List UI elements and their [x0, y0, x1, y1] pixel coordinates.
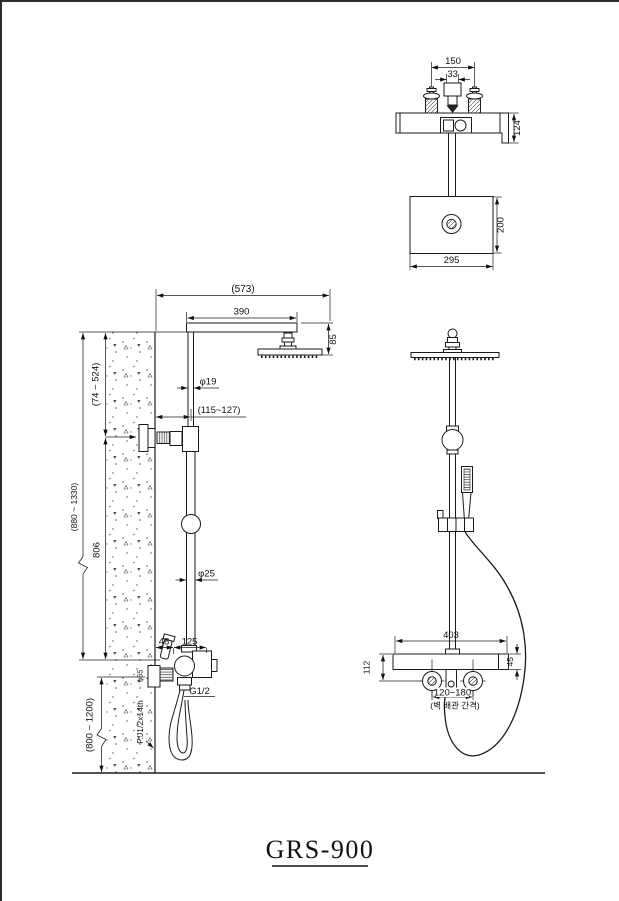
dim-arm-length: 390	[234, 307, 250, 318]
front-view: 403 112 45 120~180 (벽 배관 간격)	[362, 329, 526, 756]
ball-joint-front	[442, 430, 463, 451]
shower-arm	[187, 323, 298, 332]
spout-arrow	[447, 106, 459, 114]
wall-hatch	[107, 332, 156, 773]
drawing-sheet: 150 33 124 200 295	[0, 0, 619, 901]
hose-front	[444, 532, 525, 756]
dim-supply-spacing: 120~180	[434, 688, 471, 699]
dim-overall-height-range: (880 ~ 1330)	[69, 483, 79, 532]
dim-valve-center-height: 112	[362, 660, 372, 674]
hand-shower-front	[462, 467, 473, 522]
riser-upper	[188, 332, 194, 437]
label-outlet-thread: G1/2	[189, 686, 210, 697]
dim-wall-offset-a: 48	[159, 637, 170, 648]
dim-install-height-range: (800 ~ 1200)	[85, 698, 96, 752]
hose-side-outer	[169, 690, 192, 760]
dim-head-depth: 200	[496, 217, 507, 233]
model-title: GRS-900	[266, 835, 375, 864]
dim-wall-offset-b: 125	[182, 637, 198, 648]
side-view-body	[139, 323, 322, 760]
title-block: GRS-900	[266, 835, 375, 866]
label-supply-thread: P.J1/2x14th	[135, 700, 145, 744]
dim-upper-adjust-range: (74 ~ 524)	[91, 363, 102, 407]
slider-ball	[182, 515, 201, 534]
top-view: 150 33 124 200 295	[396, 56, 523, 270]
supply-flange	[148, 666, 160, 688]
dim-head-width: 295	[444, 255, 460, 266]
valve-body-side	[193, 651, 212, 678]
dim-valve-width: 403	[443, 630, 459, 641]
shower-head-front	[411, 353, 499, 358]
technical-drawing: 150 33 124 200 295	[0, 0, 619, 901]
dim-lower-pipe-dia: φ25	[198, 569, 215, 580]
label-flange-dia: φ55	[138, 670, 145, 682]
note-supply-spacing: (벽 배관 간격)	[430, 701, 480, 711]
dim-head-drop: 85	[328, 334, 339, 345]
shower-head-side	[258, 349, 322, 355]
dim-wall-to-pipe: (115~127)	[198, 405, 241, 416]
dim-spout-width: 33	[447, 69, 458, 80]
dim-upper-pipe-dia: φ19	[200, 377, 217, 388]
dim-overall-reach: (573)	[231, 284, 254, 295]
hose-side-inner	[177, 690, 187, 753]
dim-wall-depth: 124	[512, 120, 523, 136]
valve-knob-side	[175, 656, 195, 676]
top-view-body	[396, 83, 509, 254]
sheet-border	[0, 0, 619, 901]
pipe-clamp	[183, 427, 199, 452]
front-view-dimensions: 403 112 45 120~180 (벽 배관 간격)	[362, 630, 522, 711]
dim-riser-length: 806	[92, 542, 103, 558]
break-symbol	[79, 557, 88, 575]
wall-bracket-top	[500, 113, 509, 143]
dim-handle-spacing: 150	[445, 56, 461, 67]
mixer-bar-front	[393, 654, 509, 670]
dim-valve-body-height: 45	[505, 657, 515, 667]
riser-lower	[187, 437, 196, 646]
